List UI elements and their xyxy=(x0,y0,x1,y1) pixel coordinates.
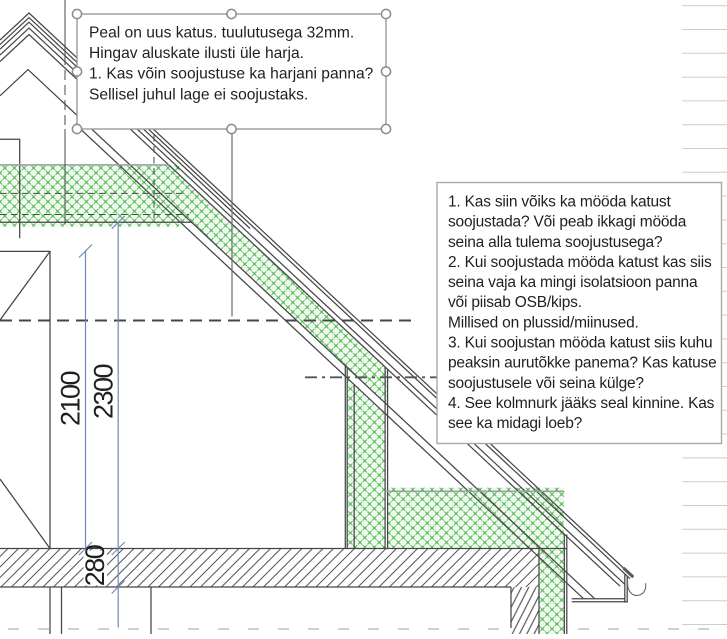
svg-text:2300: 2300 xyxy=(89,364,119,419)
svg-text:1. Kas võin soojustuse ka harj: 1. Kas võin soojustuse ka harjani panna? xyxy=(89,66,374,83)
svg-text:Millised on plussid/miinused.: Millised on plussid/miinused. xyxy=(448,314,639,331)
svg-text:280: 280 xyxy=(80,545,110,586)
svg-text:3. Kui soojustan mööda katust: 3. Kui soojustan mööda katust siis kuhu xyxy=(448,335,712,352)
svg-text:2. Kui soojustada mööda katust: 2. Kui soojustada mööda katust kas siis xyxy=(448,254,712,271)
svg-text:soojustusele või seina külge?: soojustusele või seina külge? xyxy=(448,375,644,392)
svg-text:seina vaja ka mingi isolatsioo: seina vaja ka mingi isolatsioon panna xyxy=(448,274,698,291)
svg-text:4. See kolmnurk jääks seal kin: 4. See kolmnurk jääks seal kinnine. Kas xyxy=(448,395,715,412)
svg-text:Peal on uus katus. tuulutusega: Peal on uus katus. tuulutusega 32mm. xyxy=(89,25,354,42)
svg-text:või piisab OSB/kips.: või piisab OSB/kips. xyxy=(448,294,582,311)
svg-text:peaksin aurutõkke panema? Kas: peaksin aurutõkke panema? Kas katuse xyxy=(448,355,717,372)
svg-text:2100: 2100 xyxy=(56,371,86,426)
svg-text:seina alla tulema soojustusega: seina alla tulema soojustusega? xyxy=(448,234,663,251)
svg-text:1. Kas siin võiks ka mööda kat: 1. Kas siin võiks ka mööda katust xyxy=(448,194,671,211)
svg-text:soojustada? Või peab ikkagi mö: soojustada? Või peab ikkagi mööda xyxy=(448,214,687,231)
svg-text:Sellisel juhul lage ei soojust: Sellisel juhul lage ei soojustaks. xyxy=(89,86,308,103)
svg-text:Hingav aluskate ilusti üle har: Hingav aluskate ilusti üle harja. xyxy=(89,45,304,62)
svg-text:see ka midagi loeb?: see ka midagi loeb? xyxy=(448,415,583,432)
